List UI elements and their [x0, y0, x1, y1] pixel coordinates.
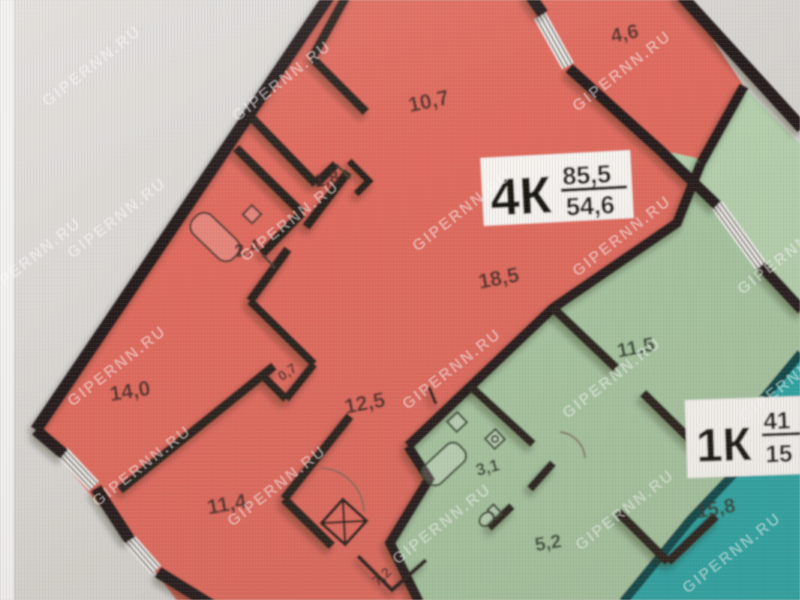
apartment-1k-area-total: 41	[763, 407, 791, 435]
apartment-1k-area-living: 15	[765, 440, 793, 468]
apartment-1k-label: 1К	[695, 417, 752, 472]
room-area-hallway-1k: 5,2	[533, 531, 562, 556]
photo-left-strip	[0, 0, 14, 600]
floorplan-svg: 4,6 10,7 1,8 2,4 18,5 0,7 12,5 14,0 11,4…	[0, 0, 800, 600]
apartment-4k-area-living: 54,6	[565, 191, 615, 222]
floorplan-photo: 4,6 10,7 1,8 2,4 18,5 0,7 12,5 14,0 11,4…	[0, 0, 800, 600]
apartment-4k-area-total: 85,5	[562, 160, 612, 191]
